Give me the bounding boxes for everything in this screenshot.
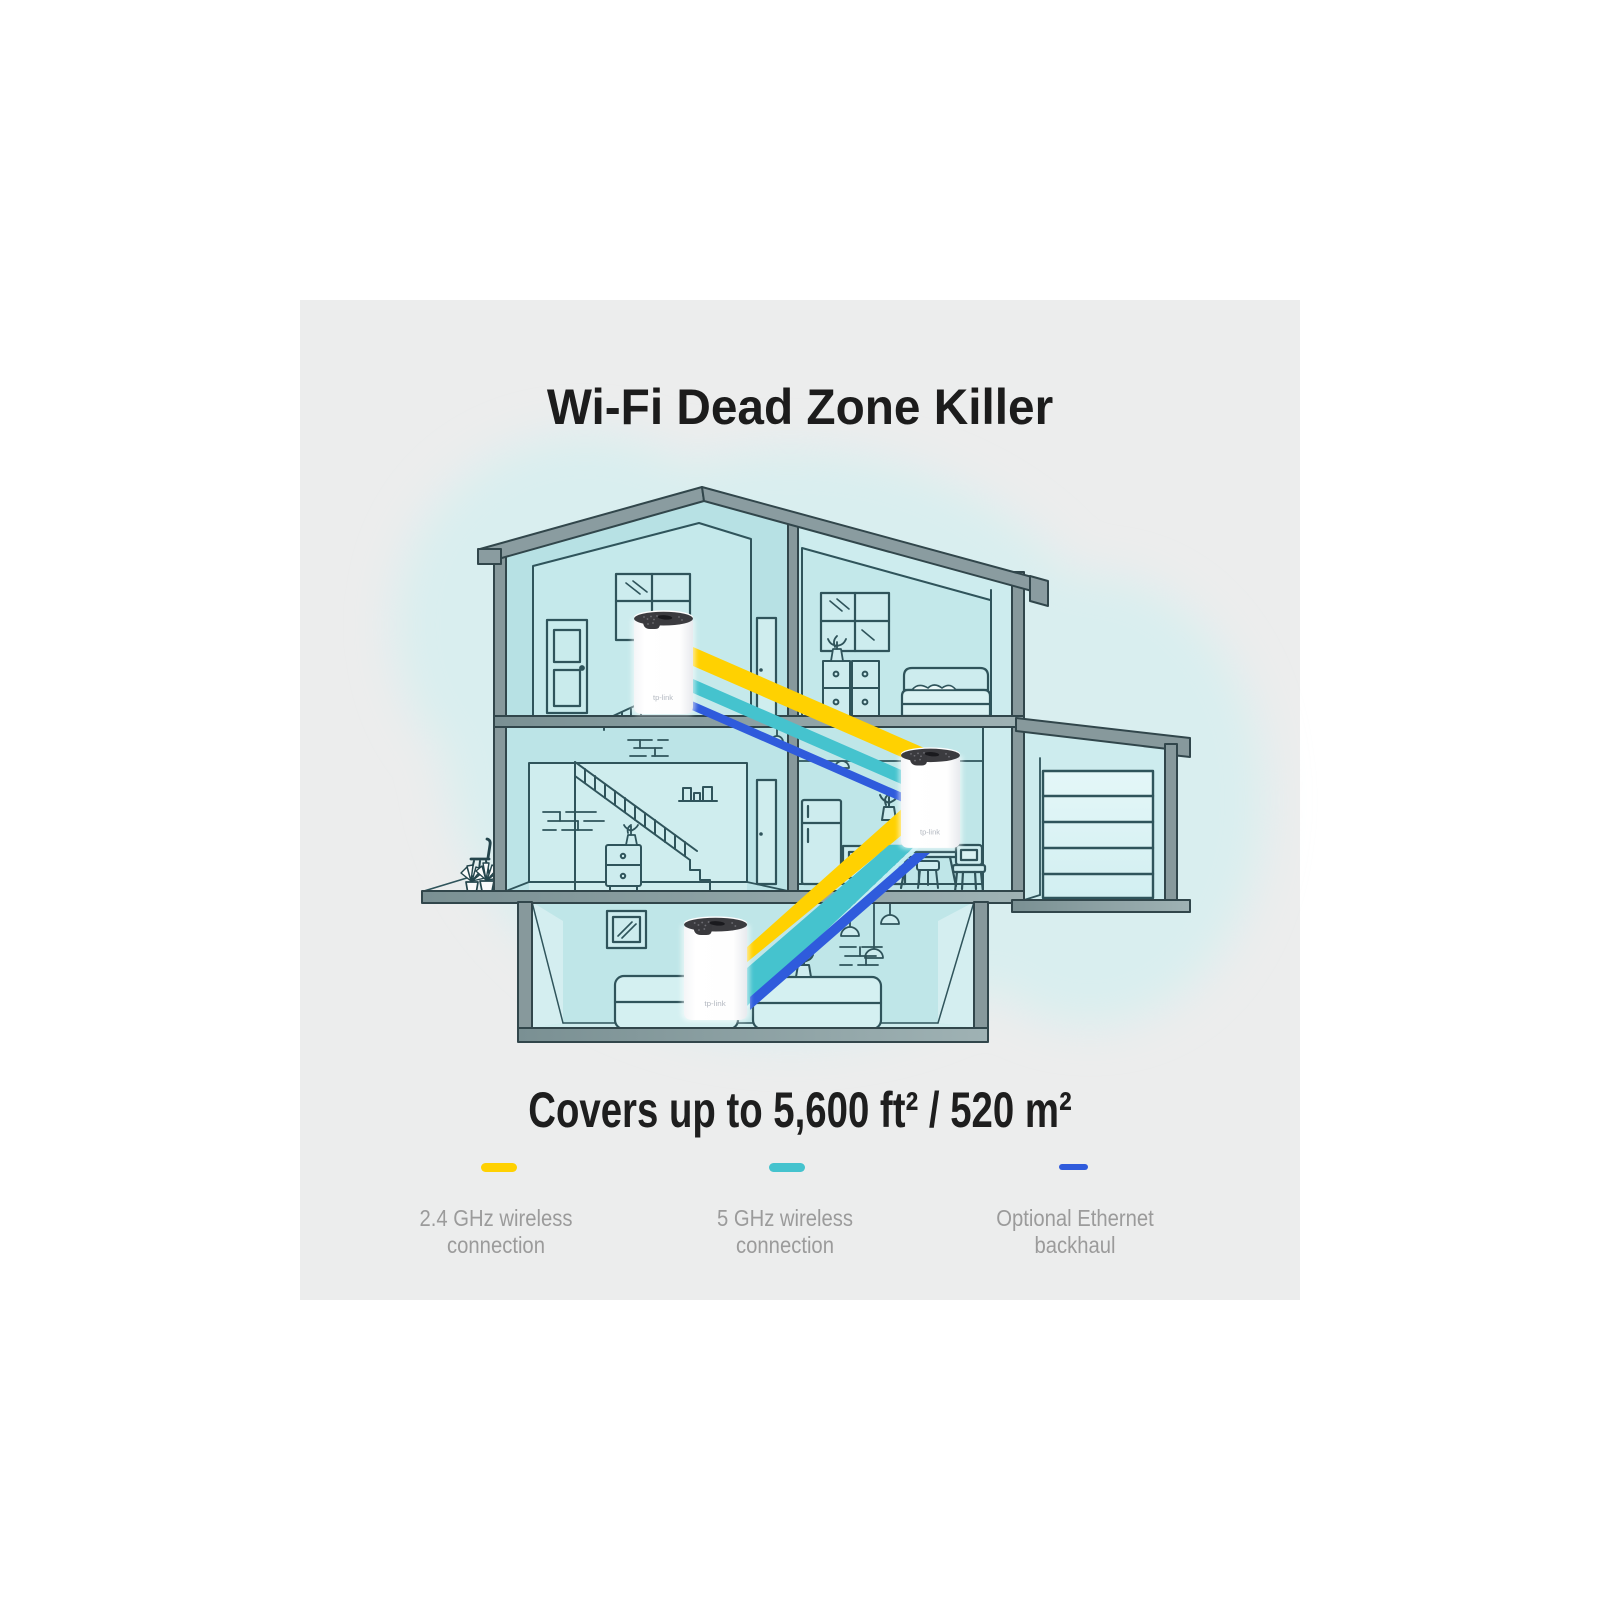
svg-text:tp-link: tp-link (653, 693, 673, 702)
svg-text:tp-link: tp-link (704, 999, 725, 1008)
svg-text:tp-link: tp-link (920, 827, 940, 836)
